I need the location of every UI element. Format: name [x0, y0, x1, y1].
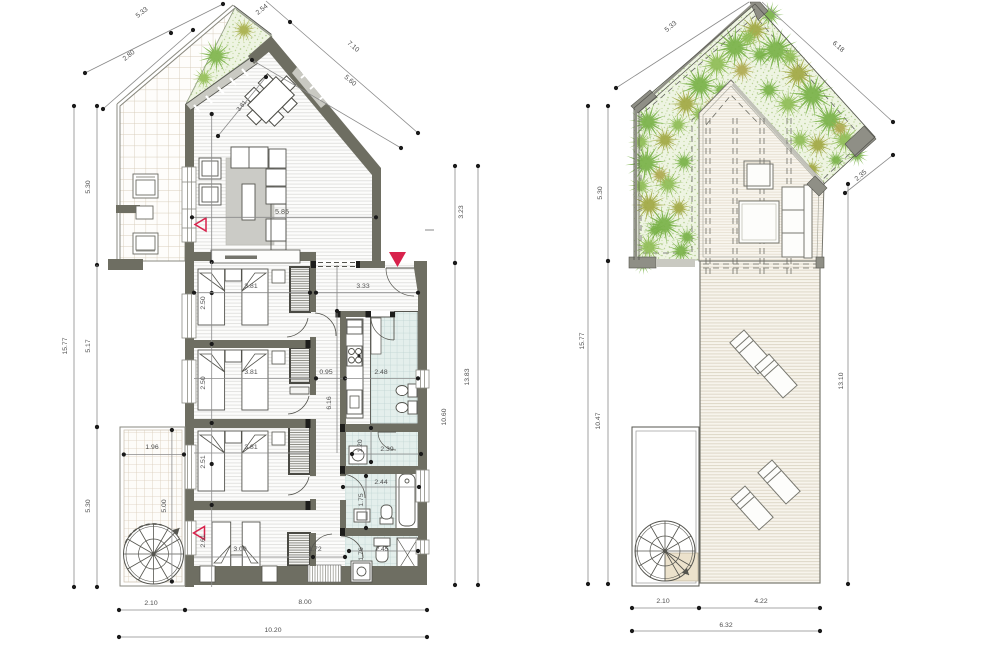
svg-text:1.75: 1.75 [358, 493, 365, 506]
svg-text:3.81: 3.81 [244, 369, 257, 376]
svg-text:2.50: 2.50 [200, 296, 207, 309]
svg-text:3.00: 3.00 [233, 546, 246, 553]
svg-text:1.20: 1.20 [357, 439, 364, 452]
svg-text:5.00: 5.00 [161, 499, 168, 512]
svg-text:5.85: 5.85 [275, 207, 289, 216]
svg-text:5.17: 5.17 [85, 339, 92, 352]
svg-text:2.50: 2.50 [200, 376, 207, 389]
svg-text:2.39: 2.39 [380, 446, 393, 453]
svg-text:5.30: 5.30 [85, 499, 92, 512]
svg-text:15.77: 15.77 [62, 337, 69, 354]
svg-text:5.30: 5.30 [597, 186, 604, 199]
svg-text:15.77: 15.77 [579, 332, 586, 349]
svg-text:6.16: 6.16 [326, 396, 333, 409]
svg-text:10.47: 10.47 [595, 412, 602, 429]
svg-text:3.81: 3.81 [244, 444, 257, 451]
svg-text:1.72: 1.72 [308, 546, 321, 553]
svg-text:0.95: 0.95 [319, 369, 332, 376]
svg-text:5.30: 5.30 [85, 180, 92, 193]
svg-text:2.10: 2.10 [656, 598, 669, 605]
svg-text:3.81: 3.81 [244, 283, 257, 290]
svg-text:1.76: 1.76 [358, 547, 365, 560]
svg-text:2.10: 2.10 [144, 600, 157, 607]
svg-text:10.20: 10.20 [264, 627, 281, 634]
svg-text:3.33: 3.33 [356, 283, 369, 290]
svg-text:6.32: 6.32 [719, 622, 732, 629]
svg-text:4.22: 4.22 [754, 598, 767, 605]
svg-text:2.44: 2.44 [374, 479, 387, 486]
svg-text:10.60: 10.60 [441, 408, 448, 425]
svg-text:2.45: 2.45 [375, 546, 388, 553]
svg-text:13.83: 13.83 [464, 368, 471, 385]
svg-text:3.23: 3.23 [458, 205, 465, 218]
svg-text:13.10: 13.10 [838, 372, 845, 389]
svg-text:2.61: 2.61 [200, 534, 207, 547]
svg-text:2.48: 2.48 [374, 369, 387, 376]
svg-text:1.96: 1.96 [145, 444, 158, 451]
svg-text:8.00: 8.00 [298, 599, 311, 606]
svg-text:2.51: 2.51 [200, 455, 207, 468]
